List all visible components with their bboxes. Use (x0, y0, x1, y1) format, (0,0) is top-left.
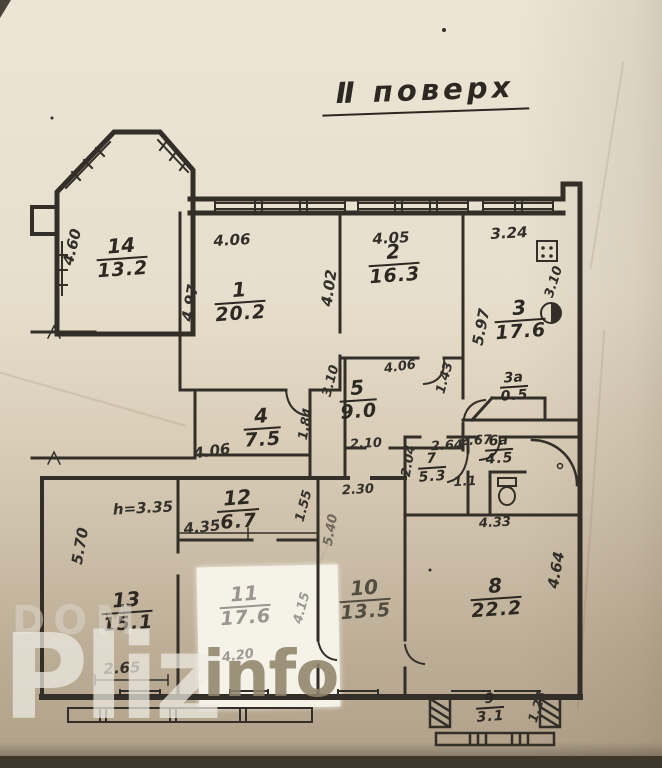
room-9-label: 93.1 (475, 691, 505, 725)
dim-room4-bottom: 4.06 (192, 440, 231, 463)
dim-room7-left: 2.04 (399, 444, 419, 478)
dim-room5-bottom: 2.10 (350, 436, 383, 453)
dim-room6a-top: 2.67 (460, 433, 493, 450)
dim-room13-left: 5.70 (68, 526, 92, 566)
dim-room10-top: 2.30 (342, 482, 375, 499)
dim-room14-left: 4.60 (59, 227, 85, 267)
room-1-label: 120.2 (213, 278, 267, 326)
room-7-label: 75.3 (417, 451, 447, 485)
dim-room12-height: h=3.35 (112, 497, 173, 518)
dim-room3-top: 3.24 (490, 223, 528, 243)
room-8-label: 822.2 (469, 574, 523, 622)
dim-room5-top: 4.06 (383, 357, 417, 376)
dim-room11-right: 4.15 (291, 591, 314, 626)
dim-room3-right: 3.10 (542, 264, 566, 299)
dim-wc-area: 1.1 (453, 474, 477, 490)
floorplan-photo: Ⅱ поверх 1413.2 120.2 216.3 317.6 3а0.5 … (0, 0, 662, 768)
room-4-label: 47.5 (242, 404, 282, 451)
room-11-label: 1117.6 (218, 582, 272, 630)
dim-bath-bottom: 4.33 (479, 515, 512, 532)
room-14-label: 1413.2 (95, 234, 149, 282)
photo-edge (0, 756, 662, 768)
dim-room8-right: 4.64 (544, 550, 568, 590)
watermark-info: info (203, 638, 338, 712)
dim-room7-top: 2.64 (431, 438, 464, 455)
watermark-pliz: Pliz (2, 608, 218, 746)
dim-room9-right: 1.23 (526, 689, 550, 724)
room-3a-label: 3а0.5 (499, 370, 529, 404)
dim-hall: 1.43 (433, 361, 456, 396)
photo-edge-shadow (0, 742, 662, 756)
room-3-label: 317.6 (493, 296, 547, 344)
dim-room2-left: 4.02 (318, 268, 341, 307)
dim-room4-right: 1.84 (296, 407, 316, 441)
page-title: Ⅱ поверх (321, 69, 529, 116)
dim-room10-left: 5.40 (321, 513, 341, 547)
dim-room3-left: 5.97 (469, 307, 494, 347)
room-12-label: 126.7 (216, 486, 261, 534)
dim-room12-right: 1.55 (293, 489, 316, 524)
dim-room1-top: 4.06 (213, 230, 251, 250)
room-5-label: 59.0 (338, 376, 378, 423)
dim-room12-width: 4.35 (183, 516, 222, 538)
dim-room1-left: 4.97 (178, 283, 202, 323)
room-10-label: 1013.5 (338, 576, 392, 624)
photo-corner-mark (0, 0, 11, 18)
dim-room2-top: 4.05 (372, 228, 410, 248)
